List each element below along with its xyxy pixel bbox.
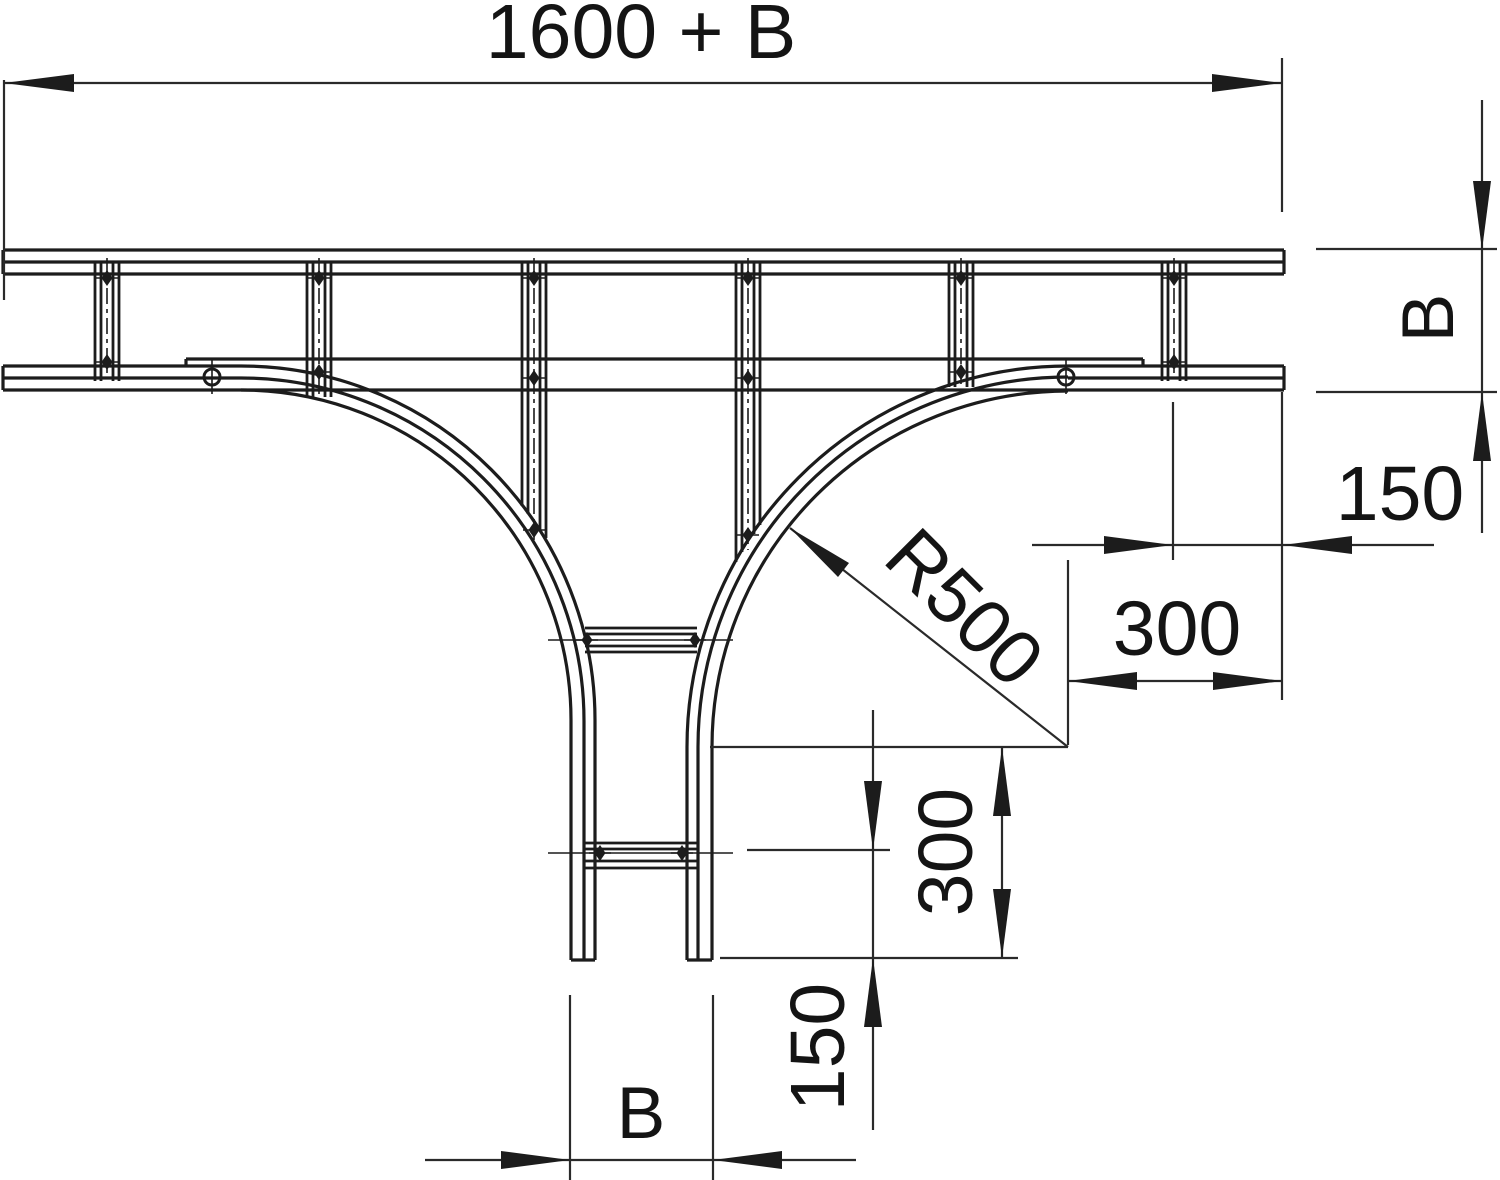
dim-corner-horizontal-label: 300 [1113,586,1241,672]
dim-end-bottom-label: 150 [775,983,861,1111]
dimension-total-length: 1600 + B [4,0,1282,300]
dimension-corner-vertical-300: 300 [720,747,1018,958]
branch-rungs [548,628,733,868]
dimension-radius-r500: R500 [710,512,1068,747]
dimension-end-right-150: 150 [1032,392,1464,700]
dim-end-right-label: 150 [1336,451,1464,537]
dim-width-bottom-label: B [617,1073,666,1154]
dimension-corner-horizontal-300: 300 [1068,560,1282,745]
dim-total-label: 1600 + B [486,0,796,75]
drawing-canvas: 1600 + B B 150 300 R500 300 150 [0,0,1500,1180]
dim-radius-label: R500 [869,512,1060,703]
dimension-end-bottom-150: 150 [747,710,890,1130]
horizontal-ladder-run [3,250,1284,562]
t-piece-drawing: 1600 + B B 150 300 R500 300 150 [0,0,1500,1180]
dim-width-right-label: B [1388,294,1469,343]
ladder-rungs [95,258,1186,562]
dim-corner-vertical-label: 300 [903,788,989,916]
